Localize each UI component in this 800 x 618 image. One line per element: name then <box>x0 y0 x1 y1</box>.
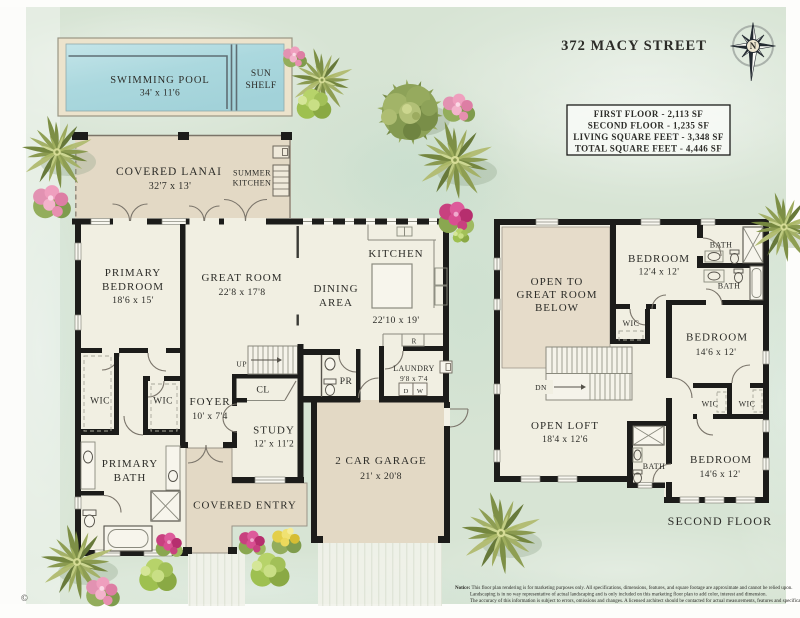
svg-text:OPEN TO: OPEN TO <box>531 276 584 288</box>
svg-text:Notice: This floor plan rende: Notice: This floor plan rendering is for… <box>455 586 793 591</box>
svg-text:DINING: DINING <box>313 283 358 295</box>
svg-text:BEDROOM: BEDROOM <box>690 454 752 466</box>
svg-text:COVERED LANAI: COVERED LANAI <box>116 166 222 178</box>
svg-text:FIRST FLOOR - 2,113 SF: FIRST FLOOR - 2,113 SF <box>594 109 704 119</box>
svg-text:34' x 11'6: 34' x 11'6 <box>140 89 180 99</box>
svg-text:BATH: BATH <box>114 472 147 484</box>
svg-text:SUN: SUN <box>251 69 271 79</box>
svg-text:32'7 x 13': 32'7 x 13' <box>149 181 192 192</box>
svg-text:W: W <box>417 388 424 395</box>
svg-text:DN: DN <box>535 383 547 392</box>
svg-text:SECOND FLOOR: SECOND FLOOR <box>668 514 773 528</box>
svg-text:BEDROOM: BEDROOM <box>628 253 690 265</box>
svg-text:OPEN LOFT: OPEN LOFT <box>531 420 599 432</box>
svg-text:WIC: WIC <box>153 397 173 407</box>
svg-text:CL: CL <box>256 385 269 396</box>
svg-text:SWIMMING POOL: SWIMMING POOL <box>110 75 210 86</box>
svg-text:TOTAL SQUARE FEET - 4,446 SF: TOTAL SQUARE FEET - 4,446 SF <box>575 144 722 154</box>
svg-text:WIC: WIC <box>702 400 719 409</box>
svg-text:WIC: WIC <box>739 400 756 409</box>
svg-text:R: R <box>412 338 417 346</box>
svg-text:SUMMER: SUMMER <box>233 169 271 178</box>
svg-text:D: D <box>404 388 409 395</box>
svg-text:SECOND FLOOR - 1,235 SF: SECOND FLOOR - 1,235 SF <box>588 121 710 131</box>
svg-text:KITCHEN: KITCHEN <box>368 248 423 260</box>
svg-text:N: N <box>750 41 757 51</box>
svg-text:22'8 x 17'8: 22'8 x 17'8 <box>218 287 265 298</box>
svg-text:14'6 x 12': 14'6 x 12' <box>696 348 737 358</box>
svg-text:PR: PR <box>340 377 353 387</box>
svg-text:PRIMARY: PRIMARY <box>105 267 162 279</box>
svg-text:372 MACY STREET: 372 MACY STREET <box>561 38 707 54</box>
svg-text:GREAT ROOM: GREAT ROOM <box>201 272 282 284</box>
svg-text:UP: UP <box>236 360 247 369</box>
svg-text:21' x 20'8: 21' x 20'8 <box>360 471 402 482</box>
svg-text:The accuracy of this informati: The accuracy of this information is subj… <box>470 599 800 604</box>
svg-text:BEDROOM: BEDROOM <box>102 281 164 293</box>
svg-text:BATH: BATH <box>710 241 733 250</box>
svg-text:GREAT ROOM: GREAT ROOM <box>516 289 597 301</box>
svg-text:12' x 11'2: 12' x 11'2 <box>254 440 294 450</box>
svg-text:2 CAR GARAGE: 2 CAR GARAGE <box>335 455 426 467</box>
svg-text:WIC: WIC <box>623 319 640 328</box>
svg-text:LIVING SQUARE FEET - 3,348 SF: LIVING SQUARE FEET - 3,348 SF <box>573 132 724 142</box>
svg-text:10' x 7'4: 10' x 7'4 <box>192 412 228 422</box>
svg-text:BATH: BATH <box>643 462 666 471</box>
svg-text:BATH: BATH <box>718 282 741 291</box>
svg-text:KITCHEN: KITCHEN <box>233 179 272 188</box>
svg-text:Landscaping is in no way repre: Landscaping is in no way representative … <box>470 593 767 598</box>
svg-text:COVERED ENTRY: COVERED ENTRY <box>193 500 297 512</box>
svg-text:14'6 x 12': 14'6 x 12' <box>700 470 741 480</box>
svg-text:22'10 x 19': 22'10 x 19' <box>372 315 419 326</box>
svg-text:18'4 x 12'6: 18'4 x 12'6 <box>542 435 588 445</box>
svg-text:STUDY: STUDY <box>253 425 295 437</box>
svg-text:SHELF: SHELF <box>245 81 276 91</box>
svg-text:WIC: WIC <box>90 397 110 407</box>
svg-text:AREA: AREA <box>319 297 353 309</box>
svg-text:PRIMARY: PRIMARY <box>102 458 159 470</box>
svg-text:BEDROOM: BEDROOM <box>686 332 748 344</box>
svg-text:BELOW: BELOW <box>535 302 579 314</box>
svg-text:12'4 x 12': 12'4 x 12' <box>639 268 680 278</box>
svg-text:LAUNDRY: LAUNDRY <box>393 364 434 373</box>
svg-text:©: © <box>21 593 28 603</box>
svg-text:18'6 x 15': 18'6 x 15' <box>112 295 154 306</box>
svg-text:9'8 x 7'4: 9'8 x 7'4 <box>400 375 428 383</box>
svg-text:FOYER: FOYER <box>189 396 230 408</box>
